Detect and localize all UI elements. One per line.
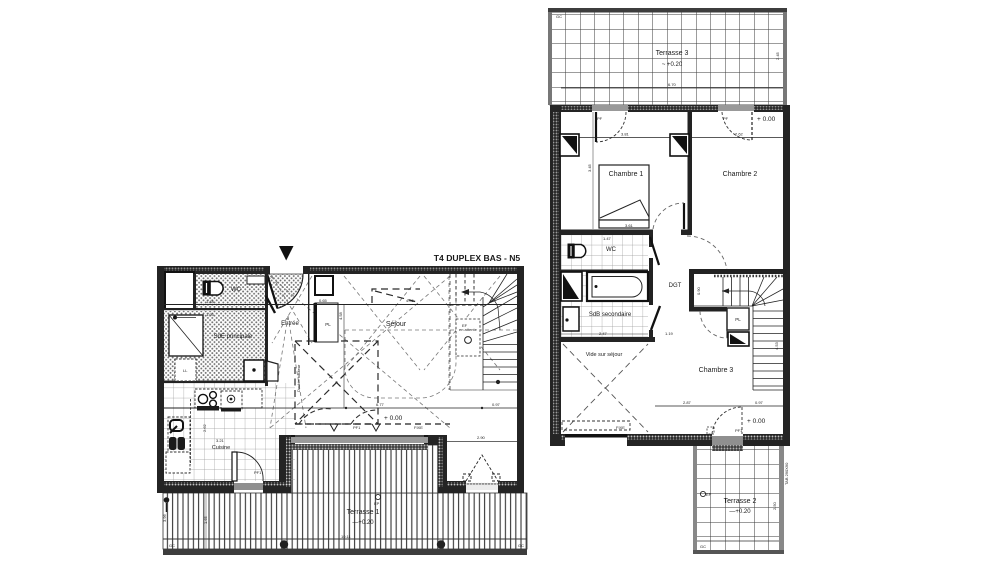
svg-text:GC: GC: [700, 544, 706, 549]
svg-text:FIXE: FIXE: [414, 425, 423, 430]
svg-text:PF1: PF1: [353, 425, 361, 430]
svg-text:1.95: 1.95: [206, 312, 215, 317]
svg-text:GC: GC: [169, 543, 175, 548]
svg-text:+ 0.00: + 0.00: [747, 418, 766, 425]
svg-text:PF: PF: [723, 116, 729, 121]
svg-text:TAB 290X90: TAB 290X90: [784, 462, 789, 485]
svg-text:2.62: 2.62: [202, 423, 207, 432]
svg-text:GC: GC: [556, 14, 562, 19]
svg-text:1.48: 1.48: [206, 299, 215, 304]
svg-text:WC: WC: [231, 287, 242, 293]
svg-text:0.65: 0.65: [319, 298, 328, 303]
svg-text:LL: LL: [183, 368, 188, 373]
svg-text:PF1: PF1: [735, 428, 743, 433]
svg-text:3.61: 3.61: [625, 223, 634, 228]
svg-text:Cuisine: Cuisine: [212, 445, 230, 451]
svg-text:1.47: 1.47: [603, 236, 612, 241]
svg-text:10.11: 10.11: [341, 534, 351, 539]
svg-text:+ 0.00: + 0.00: [384, 415, 403, 422]
svg-text:Terrasse 3: Terrasse 3: [656, 50, 689, 57]
svg-text:PF: PF: [597, 116, 603, 121]
svg-text:—+0.20: —+0.20: [729, 509, 751, 515]
svg-text:Entrée: Entrée: [281, 321, 299, 327]
svg-text:1.65: 1.65: [203, 515, 208, 524]
svg-text:PF1: PF1: [254, 470, 262, 475]
svg-text:1.19: 1.19: [665, 331, 674, 336]
svg-text:2.62: 2.62: [735, 132, 744, 137]
svg-text:SdB secondaire: SdB secondaire: [589, 312, 632, 318]
svg-text:6.77: 6.77: [376, 402, 385, 407]
svg-text:PL: PL: [735, 317, 741, 322]
svg-text:—+0.20: —+0.20: [352, 520, 374, 526]
svg-text:Double hauteur: Double hauteur: [296, 364, 301, 392]
svg-text:0.90: 0.90: [696, 286, 701, 295]
svg-text:2.47: 2.47: [599, 331, 608, 336]
svg-text:Chambre 2: Chambre 2: [723, 171, 758, 178]
svg-text:EP: EP: [706, 492, 712, 497]
svg-text:DGT: DGT: [669, 283, 682, 289]
svg-text:3.96: 3.96: [162, 513, 167, 522]
svg-text:0.97: 0.97: [755, 400, 764, 405]
svg-text:Terrasse 1: Terrasse 1: [347, 509, 380, 516]
svg-text:en attente: en attente: [459, 327, 478, 332]
svg-text:2.45: 2.45: [775, 51, 780, 60]
svg-text:6.70: 6.70: [668, 82, 677, 87]
svg-text:T4 DUPLEX BAS - N5: T4 DUPLEX BAS - N5: [434, 253, 521, 263]
svg-text:SdE principale: SdE principale: [214, 334, 253, 340]
svg-text:FIXE: FIXE: [616, 425, 625, 430]
svg-text:0.97: 0.97: [492, 402, 501, 407]
svg-text:~ +0.20: ~ +0.20: [662, 62, 683, 68]
svg-text:3.81: 3.81: [621, 132, 630, 137]
svg-text:WC: WC: [606, 247, 617, 253]
svg-text:Chambre 1: Chambre 1: [609, 171, 644, 178]
svg-text:PL: PL: [325, 322, 331, 327]
svg-text:Chambre 3: Chambre 3: [699, 367, 734, 374]
svg-text:GC: GC: [518, 543, 524, 548]
svg-text:+ 0.00: + 0.00: [757, 116, 776, 123]
svg-text:Vide sur séjour: Vide sur séjour: [586, 352, 623, 358]
svg-text:2.90: 2.90: [477, 435, 486, 440]
svg-text:EP: EP: [374, 501, 380, 506]
svg-text:Terrasse 2: Terrasse 2: [724, 498, 757, 505]
svg-text:Séjour: Séjour: [386, 321, 407, 328]
svg-text:3.21: 3.21: [216, 438, 225, 443]
svg-text:4.06: 4.06: [406, 298, 415, 303]
svg-text:2.50: 2.50: [772, 501, 777, 510]
svg-text:3.45: 3.45: [587, 163, 592, 172]
svg-text:2.87: 2.87: [683, 400, 692, 405]
svg-text:4.58: 4.58: [338, 311, 343, 320]
